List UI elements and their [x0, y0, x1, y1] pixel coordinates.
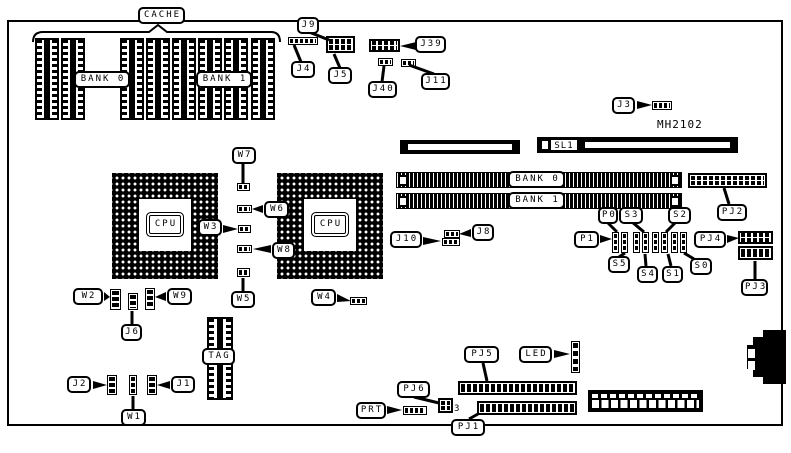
- header-pj4: [738, 231, 773, 244]
- label-pj4: PJ4: [694, 231, 726, 248]
- label-w4: W4: [311, 289, 336, 306]
- label-j3: J3: [612, 97, 635, 114]
- label-sl1: SL1: [549, 138, 579, 152]
- label-pj6: PJ6: [397, 381, 430, 398]
- switch-s2: [652, 232, 659, 253]
- label-led: LED: [519, 346, 552, 363]
- socket-end-clip: [670, 196, 680, 207]
- label-s1: S1: [662, 266, 683, 283]
- label-w2: W2: [73, 288, 103, 305]
- motherboard-diagram: CACHE BANK 0 BANK 1 J9 J4 J5 J39 J40 J11…: [0, 0, 791, 453]
- label-j11: J11: [421, 73, 450, 90]
- label-j40: J40: [368, 81, 397, 98]
- jumper-w3: [238, 225, 251, 233]
- header-j4: [288, 37, 318, 45]
- slot-contact-stripe: [585, 142, 730, 148]
- label-s0: S0: [690, 258, 712, 275]
- label-w8: W8: [272, 242, 295, 259]
- switch-s1: [661, 232, 668, 253]
- label-w9: W9: [167, 288, 192, 305]
- label-j10: J10: [390, 231, 422, 248]
- slot-contact-stripe: [408, 144, 512, 150]
- cache-chip: [35, 38, 59, 120]
- label-j4: J4: [291, 61, 315, 78]
- header-j10: [442, 238, 460, 246]
- label-w5: W5: [231, 291, 255, 308]
- header-pj1: [477, 401, 577, 415]
- jumper-w4: [350, 297, 367, 305]
- label-pj5: PJ5: [464, 346, 499, 363]
- header-pj3: [738, 246, 773, 260]
- header-j11: [401, 59, 416, 67]
- label-j9: J9: [297, 17, 319, 34]
- jumper-w1: [129, 375, 137, 395]
- label-pj1: PJ1: [451, 419, 485, 436]
- header-prt: [403, 406, 427, 415]
- switch-p0-p1: [612, 232, 619, 253]
- socket-end-clip: [398, 196, 408, 207]
- header-j40: [378, 58, 393, 66]
- jumper-w9: [145, 288, 155, 310]
- header-j8: [444, 230, 460, 238]
- header-j9-j5: [326, 36, 355, 53]
- label-s3: S3: [619, 207, 643, 224]
- cpu-left-label: CPU: [149, 215, 181, 234]
- label-prt: PRT: [356, 402, 386, 419]
- label-j39: J39: [415, 36, 446, 53]
- cache-chip: [251, 38, 275, 120]
- cache-bank0-label: BANK 0: [74, 71, 130, 88]
- cache-callout-label: CACHE: [138, 7, 185, 24]
- switch-extra: [680, 232, 687, 253]
- label-w3: W3: [198, 219, 222, 236]
- header-pj2: [688, 173, 767, 188]
- label-j2: J2: [67, 376, 91, 393]
- cache-bank1-label: BANK 1: [196, 71, 252, 88]
- label-tag: TAG: [202, 348, 235, 365]
- cache-chip: [146, 38, 170, 120]
- pj6-pin-count: 3: [454, 404, 459, 414]
- jumper-j1: [147, 375, 157, 395]
- jumper-j6: [128, 293, 138, 310]
- label-w6: W6: [264, 201, 289, 218]
- cache-chip: [172, 38, 196, 120]
- switch-s4: [642, 232, 649, 253]
- label-s5: S5: [608, 256, 630, 273]
- label-p1: P1: [574, 231, 599, 248]
- label-p0: P0: [598, 207, 618, 224]
- board-model-text: MH2102: [657, 118, 703, 131]
- label-j5: J5: [328, 67, 352, 84]
- label-w1: W1: [121, 409, 146, 426]
- label-j1: J1: [171, 376, 195, 393]
- jumper-w2: [110, 289, 121, 310]
- label-j6: J6: [121, 324, 142, 341]
- socket-end-clip: [398, 175, 408, 186]
- header-pj5: [458, 381, 577, 395]
- cpu-right-label: CPU: [314, 215, 346, 234]
- label-pj2: PJ2: [717, 204, 747, 221]
- label-w7: W7: [232, 147, 256, 164]
- label-pj3: PJ3: [741, 279, 768, 296]
- header-j39: [369, 39, 400, 52]
- power-pin-row: [592, 400, 699, 408]
- jumper-w5: [237, 268, 250, 277]
- label-j8: J8: [472, 224, 494, 241]
- jumper-w8: [237, 245, 252, 253]
- switch-s5: [621, 232, 628, 253]
- jumper-w7: [237, 183, 250, 191]
- memory-bank1-label: BANK 1: [508, 192, 565, 209]
- jumper-w6: [237, 205, 252, 213]
- led-indicator: [571, 341, 580, 373]
- label-s2: S2: [668, 207, 691, 224]
- socket-end-clip: [670, 175, 680, 186]
- switch-s3: [633, 232, 640, 253]
- header-pj6: [438, 398, 453, 413]
- power-pin-row: [592, 394, 699, 398]
- memory-bank0-label: BANK 0: [508, 171, 565, 188]
- switch-s0: [671, 232, 678, 253]
- header-j3: [652, 101, 672, 110]
- slot-pin1-mark: [542, 141, 548, 149]
- expansion-slot: [400, 140, 520, 154]
- label-s4: S4: [637, 266, 658, 283]
- power-connector: [588, 390, 703, 412]
- jumper-j2: [107, 375, 117, 395]
